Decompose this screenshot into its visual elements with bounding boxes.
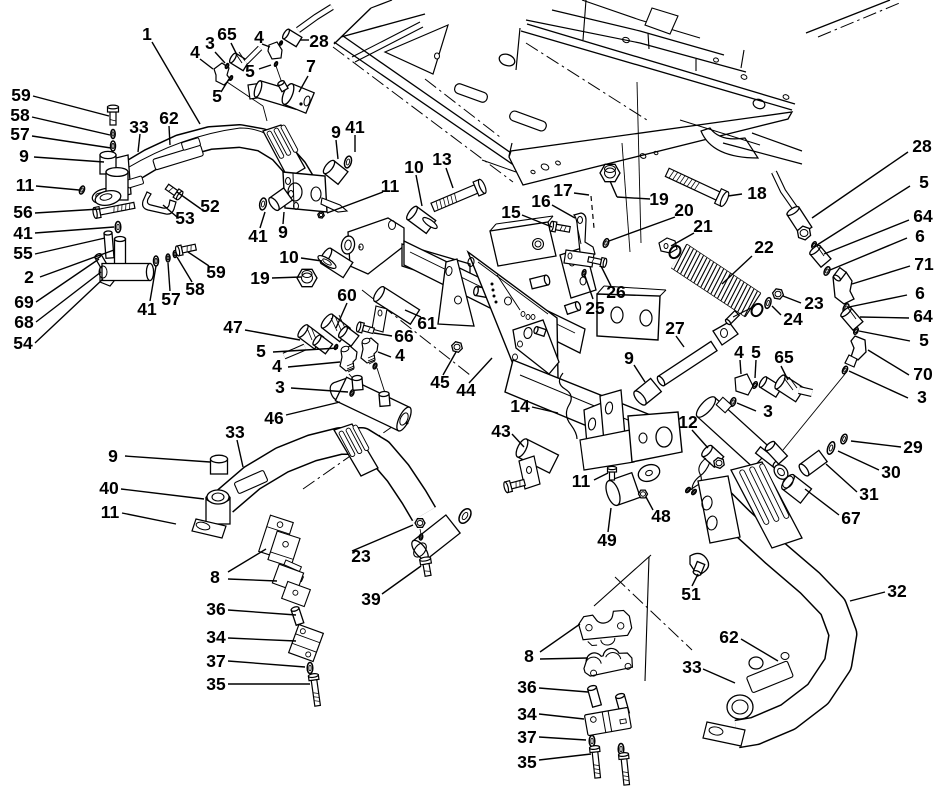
svg-text:11: 11 [381, 176, 400, 196]
svg-text:52: 52 [200, 196, 220, 216]
svg-text:45: 45 [430, 372, 450, 392]
svg-text:44: 44 [456, 380, 476, 400]
svg-text:68: 68 [14, 312, 34, 332]
svg-text:2: 2 [24, 267, 34, 287]
svg-text:26: 26 [606, 282, 626, 302]
svg-text:46: 46 [264, 408, 284, 428]
svg-text:41: 41 [345, 117, 365, 137]
svg-text:5: 5 [212, 86, 222, 106]
svg-text:62: 62 [719, 627, 739, 647]
svg-text:37: 37 [206, 651, 225, 671]
svg-text:64: 64 [913, 306, 933, 326]
svg-text:4: 4 [734, 342, 744, 362]
svg-text:41: 41 [137, 299, 157, 319]
svg-text:41: 41 [248, 226, 268, 246]
svg-text:23: 23 [804, 293, 824, 313]
svg-text:69: 69 [14, 292, 34, 312]
svg-text:48: 48 [651, 506, 671, 526]
svg-text:1: 1 [142, 24, 152, 44]
svg-text:18: 18 [747, 183, 767, 203]
svg-text:57: 57 [161, 289, 180, 309]
svg-text:56: 56 [13, 202, 33, 222]
svg-text:6: 6 [915, 283, 925, 303]
svg-text:5: 5 [256, 341, 266, 361]
svg-text:34: 34 [517, 704, 537, 724]
svg-text:3: 3 [275, 377, 285, 397]
svg-text:9: 9 [624, 348, 634, 368]
svg-text:64: 64 [913, 206, 933, 226]
svg-text:57: 57 [10, 124, 29, 144]
svg-text:70: 70 [913, 364, 933, 384]
svg-text:10: 10 [279, 247, 299, 267]
svg-text:33: 33 [225, 422, 245, 442]
svg-text:41: 41 [13, 223, 33, 243]
svg-text:9: 9 [108, 446, 118, 466]
svg-text:9: 9 [331, 122, 341, 142]
svg-text:13: 13 [432, 149, 452, 169]
svg-text:36: 36 [206, 599, 226, 619]
svg-text:51: 51 [681, 584, 701, 604]
svg-text:28: 28 [309, 31, 329, 51]
svg-text:65: 65 [217, 24, 237, 44]
svg-text:65: 65 [774, 347, 794, 367]
svg-text:39: 39 [361, 589, 381, 609]
svg-text:33: 33 [682, 657, 702, 677]
svg-text:27: 27 [665, 318, 684, 338]
svg-text:11: 11 [572, 471, 591, 491]
svg-text:24: 24 [783, 309, 803, 329]
svg-text:4: 4 [190, 42, 200, 62]
svg-text:37: 37 [517, 727, 536, 747]
svg-text:7: 7 [306, 56, 316, 76]
svg-text:19: 19 [250, 268, 270, 288]
svg-text:49: 49 [597, 530, 617, 550]
svg-text:8: 8 [524, 646, 534, 666]
svg-text:58: 58 [185, 279, 205, 299]
svg-text:9: 9 [278, 222, 288, 242]
svg-text:34: 34 [206, 627, 226, 647]
svg-text:4: 4 [272, 356, 282, 376]
svg-text:5: 5 [245, 61, 255, 81]
svg-text:4: 4 [254, 27, 264, 47]
svg-text:3: 3 [205, 33, 215, 53]
svg-text:40: 40 [99, 478, 119, 498]
svg-text:36: 36 [517, 677, 537, 697]
svg-text:55: 55 [13, 243, 33, 263]
svg-text:23: 23 [351, 546, 371, 566]
svg-text:32: 32 [887, 581, 907, 601]
svg-text:59: 59 [11, 85, 31, 105]
svg-text:21: 21 [693, 216, 713, 236]
svg-text:5: 5 [919, 330, 929, 350]
svg-text:28: 28 [912, 136, 932, 156]
svg-text:25: 25 [585, 298, 605, 318]
svg-text:22: 22 [754, 237, 774, 257]
svg-text:53: 53 [175, 208, 195, 228]
svg-text:9: 9 [19, 146, 29, 166]
svg-text:47: 47 [223, 317, 242, 337]
svg-text:59: 59 [206, 262, 226, 282]
svg-text:35: 35 [517, 752, 537, 772]
svg-text:35: 35 [206, 674, 226, 694]
svg-text:10: 10 [404, 157, 424, 177]
svg-text:6: 6 [915, 226, 925, 246]
svg-text:8: 8 [210, 567, 220, 587]
svg-text:16: 16 [531, 191, 551, 211]
svg-text:43: 43 [491, 421, 511, 441]
svg-text:15: 15 [501, 202, 521, 222]
svg-text:19: 19 [649, 189, 669, 209]
svg-text:3: 3 [763, 401, 773, 421]
svg-text:12: 12 [678, 412, 698, 432]
svg-text:71: 71 [914, 254, 934, 274]
svg-text:31: 31 [859, 484, 879, 504]
svg-text:5: 5 [919, 172, 929, 192]
svg-text:61: 61 [417, 313, 437, 333]
svg-text:58: 58 [10, 105, 30, 125]
svg-text:66: 66 [394, 326, 414, 346]
svg-text:14: 14 [510, 396, 530, 416]
svg-text:67: 67 [841, 508, 860, 528]
svg-text:17: 17 [553, 180, 572, 200]
svg-text:54: 54 [13, 333, 33, 353]
svg-text:60: 60 [337, 285, 357, 305]
svg-text:11: 11 [101, 502, 120, 522]
svg-text:5: 5 [751, 342, 761, 362]
svg-text:20: 20 [674, 200, 694, 220]
svg-text:11: 11 [16, 175, 35, 195]
svg-text:62: 62 [159, 108, 179, 128]
svg-text:29: 29 [903, 437, 923, 457]
svg-text:33: 33 [129, 117, 149, 137]
svg-text:4: 4 [395, 345, 405, 365]
svg-text:30: 30 [881, 462, 901, 482]
svg-text:3: 3 [917, 387, 927, 407]
